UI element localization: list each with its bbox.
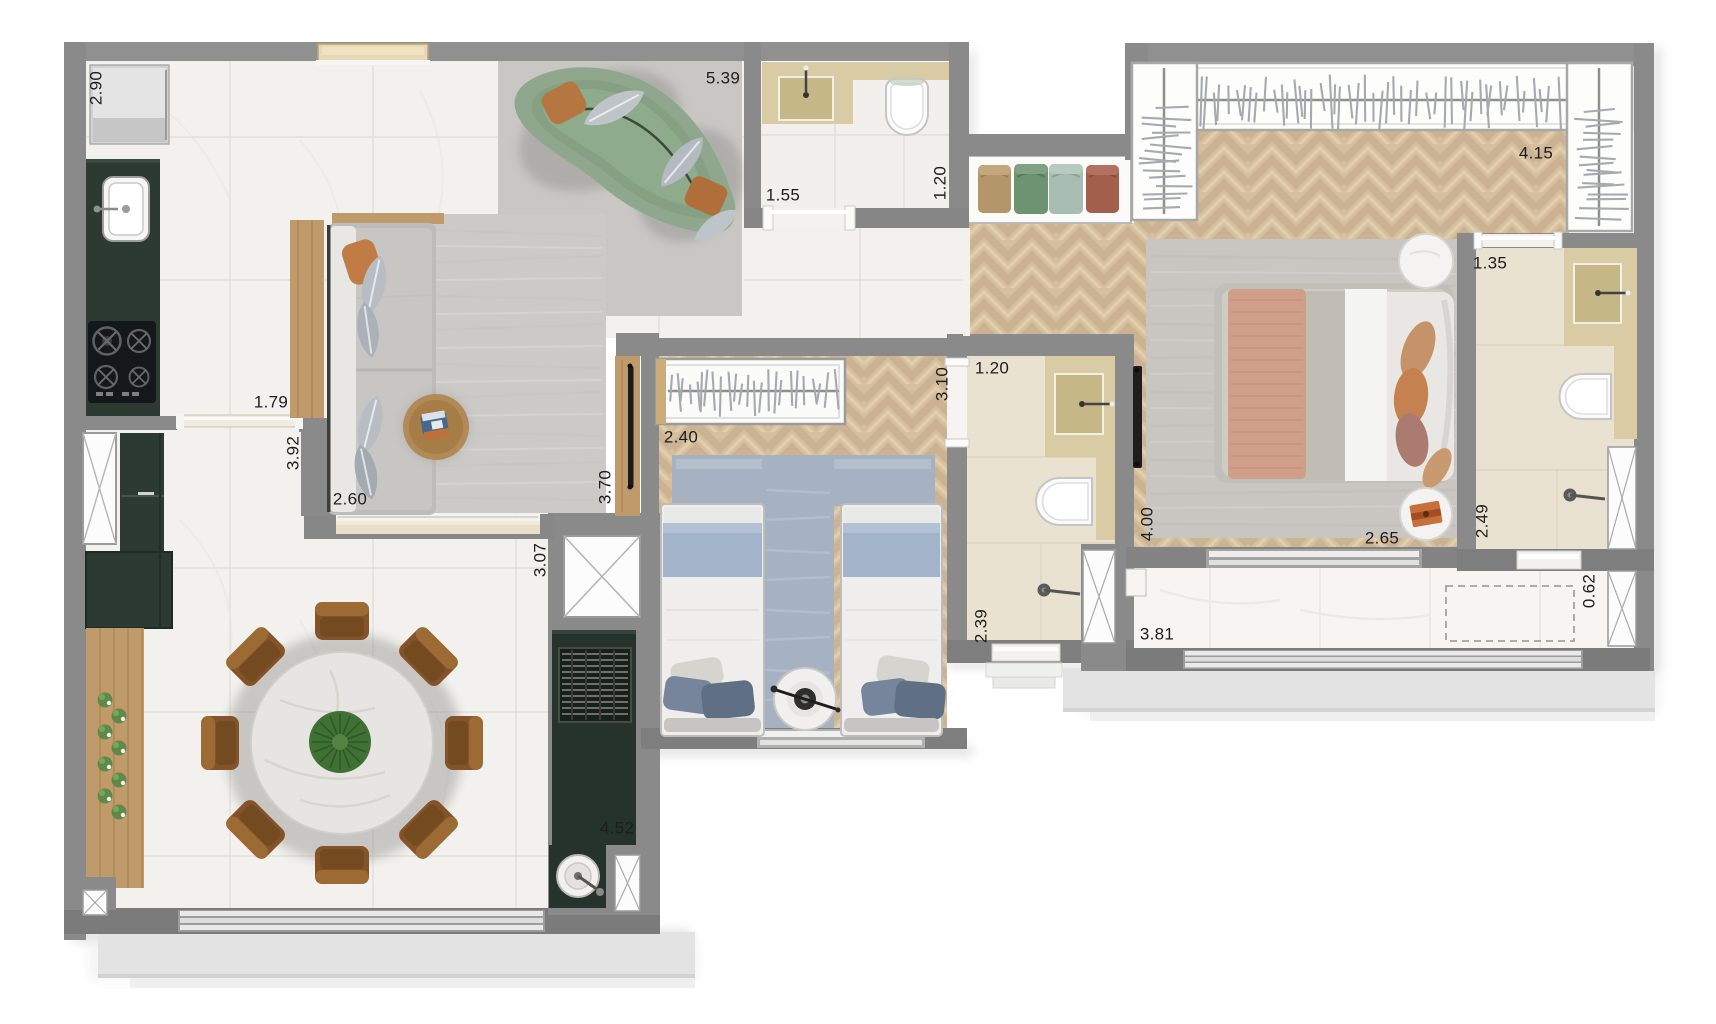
svg-text:2.90: 2.90	[87, 71, 106, 105]
svg-text:3.07: 3.07	[531, 543, 550, 577]
svg-text:1.20: 1.20	[975, 359, 1009, 378]
svg-text:1.35: 1.35	[1473, 254, 1507, 273]
svg-text:3.10: 3.10	[933, 367, 952, 401]
svg-text:1.20: 1.20	[931, 166, 950, 200]
svg-text:2.39: 2.39	[972, 609, 991, 643]
svg-text:0.62: 0.62	[1580, 574, 1599, 608]
svg-text:3.81: 3.81	[1140, 625, 1174, 644]
svg-text:1.55: 1.55	[766, 186, 800, 205]
svg-text:3.70: 3.70	[596, 470, 615, 504]
svg-text:2.40: 2.40	[664, 428, 698, 447]
svg-text:3.92: 3.92	[284, 436, 303, 470]
svg-text:4.00: 4.00	[1138, 507, 1157, 541]
svg-text:4.52: 4.52	[600, 819, 634, 838]
svg-text:5.39: 5.39	[706, 69, 740, 88]
svg-text:4.15: 4.15	[1519, 144, 1553, 163]
svg-text:2.60: 2.60	[333, 490, 367, 509]
svg-text:2.65: 2.65	[1365, 529, 1399, 548]
svg-text:1.79: 1.79	[254, 393, 288, 412]
svg-text:2.49: 2.49	[1473, 504, 1492, 538]
